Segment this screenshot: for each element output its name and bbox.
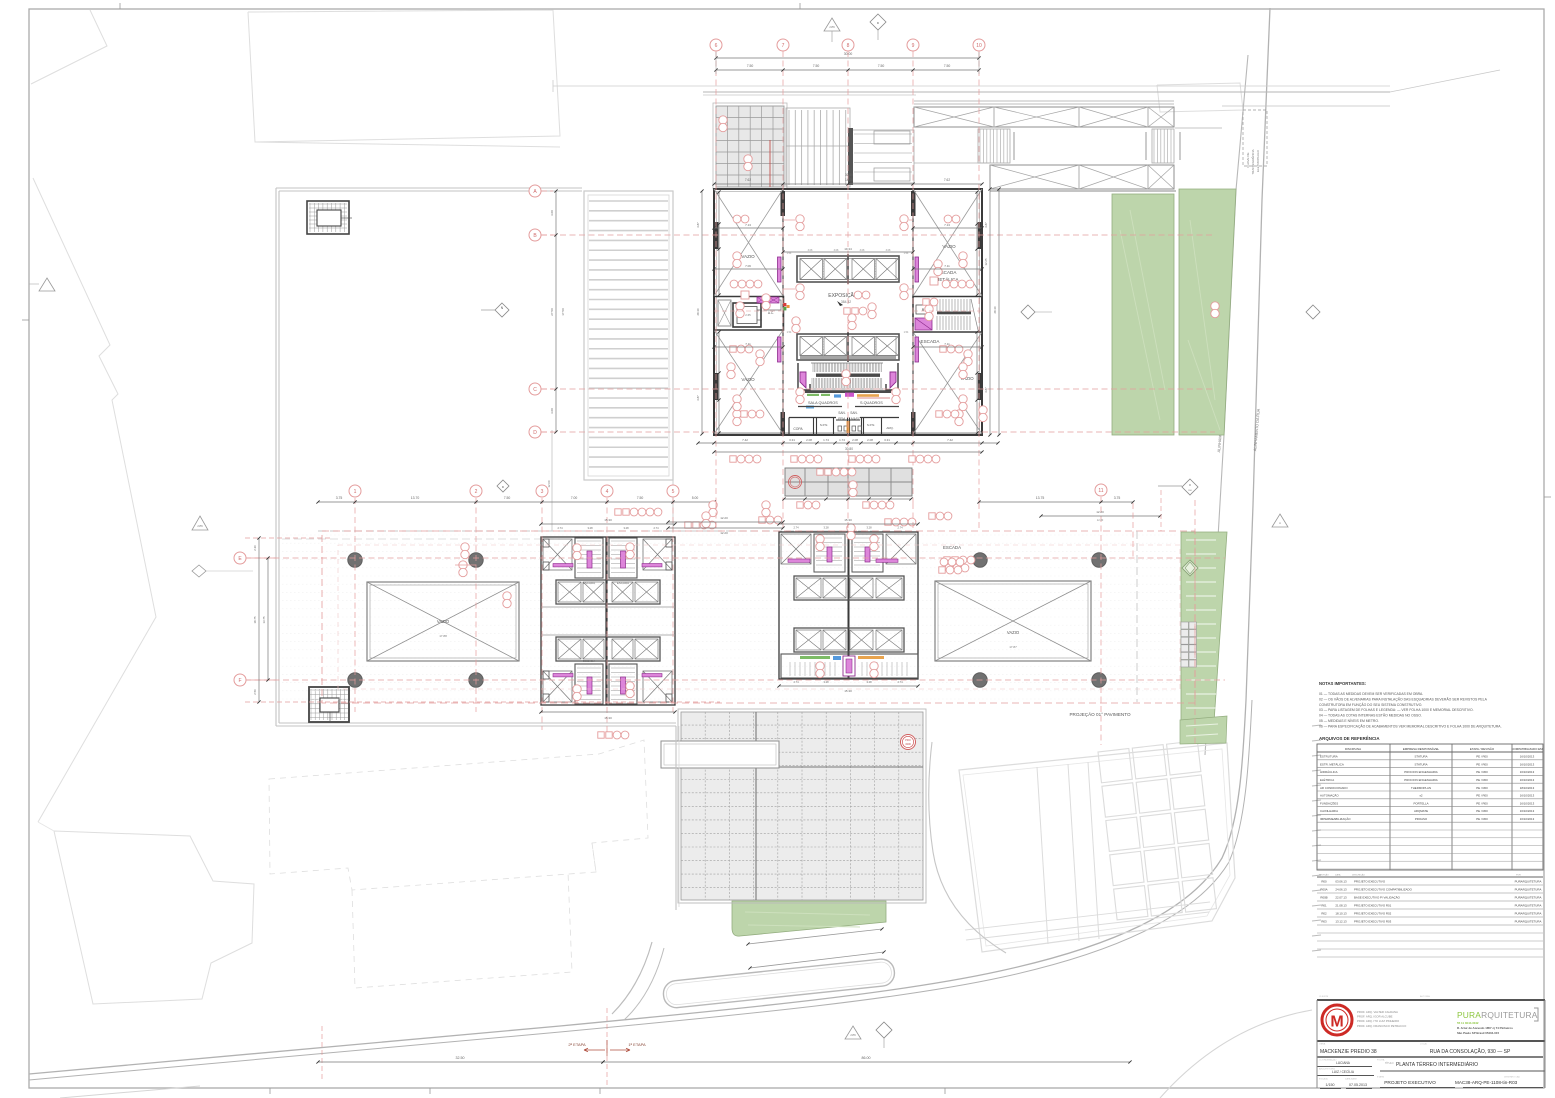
svg-text:ESCALA: ESCALA [1319,1078,1328,1081]
svg-text:PROJETO EXECUTIVO COMPATIBIL: PROJETO EXECUTIVO COMPATIBILIZADO [1354,887,1413,891]
svg-text:2.08: 2.08 [867,438,873,442]
svg-text:3.87: 3.87 [984,387,988,393]
svg-text:CLIENTE: CLIENTE [1319,996,1329,998]
svg-text:F: F [238,678,241,684]
svg-text:3.08: 3.08 [886,249,891,252]
svg-text:16/10/2013: 16/10/2013 [1520,778,1535,782]
svg-text:COMPATIBILIZADO EM: COMPATIBILIZADO EM [1511,747,1543,751]
svg-text:PE / R00: PE / R00 [1476,794,1488,798]
svg-text:30.80: 30.80 [845,173,853,177]
svg-text:REVISÃO: REVISÃO [1319,874,1329,877]
svg-text:3.28: 3.28 [823,680,829,684]
svg-text:A: A [1279,521,1281,525]
svg-text:ELÉTRICA: ELÉTRICA [1320,777,1334,782]
svg-text:7.42: 7.42 [742,438,748,442]
svg-text:PE / R00: PE / R00 [1476,817,1488,821]
svg-text:3.75: 3.75 [1114,496,1121,500]
svg-text:2.50: 2.50 [253,689,257,695]
svg-text:7.50: 7.50 [878,64,885,68]
svg-text:3.28: 3.28 [866,526,872,530]
svg-text:1: 1 [354,489,357,495]
svg-text:2.74: 2.74 [653,526,659,530]
svg-text:32.50: 32.50 [456,1056,465,1060]
svg-text:19.34: 19.34 [844,247,852,251]
svg-text:PROJETO EXECUTIVO: PROJETO EXECUTIVO [1384,1080,1436,1086]
svg-text:7.62: 7.62 [944,178,950,182]
svg-text:55 11 3044.3042: 55 11 3044.3042 [1457,1021,1479,1025]
svg-text:4300: 4300 [905,742,911,746]
svg-text:RUA DA CONSOLAÇÃO, 930 —: RUA DA CONSOLAÇÃO, 930 — SP [1430,1048,1511,1055]
svg-text:COPA: COPA [793,427,803,431]
svg-text:SAN.: SAN. [850,411,858,415]
svg-text:ETAPA / REVISÃO: ETAPA / REVISÃO [1470,746,1495,751]
svg-text:7.13: 7.13 [944,223,950,227]
svg-text:13.75: 13.75 [1036,496,1045,500]
svg-text:12.20: 12.20 [1096,510,1104,514]
svg-text:PROF. ARQ. ITO LUIZ PINHEIRO: PROF. ARQ. ITO LUIZ PINHEIRO [1357,1019,1400,1023]
svg-text:PROCION ENGENHARIA: PROCION ENGENHARIA [1404,770,1437,774]
svg-text:ARQUIVOS DE REFERÊNCIA: ARQUIVOS DE REFERÊNCIA [1319,736,1380,741]
svg-text:2.65: 2.65 [745,313,751,317]
svg-text:TRANSFERÊNCIA: TRANSFERÊNCIA [1250,149,1255,174]
svg-text:FOLHA: FOLHA [1377,1059,1385,1062]
svg-text:384.32: 384.32 [841,300,851,304]
svg-text:s2: s2 [1419,794,1422,798]
svg-text:30.80: 30.80 [845,447,853,451]
svg-text:2155: 2155 [850,1034,856,1037]
svg-text:S.QUADROS: S.QUADROS [860,401,883,405]
svg-text:15.30: 15.30 [844,518,852,522]
svg-text:17.87: 17.87 [1009,645,1017,649]
svg-text:ESTR. METÁLICA: ESTR. METÁLICA [1320,762,1344,766]
svg-text:7.13: 7.13 [745,223,751,227]
svg-text:10: 10 [976,43,982,49]
svg-text:R03: R03 [1321,919,1327,923]
svg-text:7.50: 7.50 [747,64,754,68]
svg-text:D: D [533,430,537,436]
svg-text:1.54: 1.54 [904,331,909,334]
svg-text:7.62: 7.62 [745,178,751,182]
svg-text:15.30: 15.30 [844,689,852,693]
svg-text:ESCADA: ESCADA [583,659,595,663]
svg-text:06 — PARA ESPECIFICAÇÃO DE ACA: 06 — PARA ESPECIFICAÇÃO DE ACABAMENTOS V… [1319,723,1502,728]
svg-text:A.C.: A.C. [768,311,774,315]
svg-text:05 — MEDIDAS E NÍVEIS EM METRO: 05 — MEDIDAS E NÍVEIS EM METRO. [1319,719,1379,723]
svg-text:PURARQUITETURA: PURARQUITETURA [1515,919,1542,923]
svg-text:OBRA: OBRA [1319,1043,1326,1046]
svg-text:PROCION ENGENHARIA: PROCION ENGENHARIA [1404,778,1437,782]
svg-text:DISCIPLINA: DISCIPLINA [1345,747,1361,751]
svg-text:AUTORIA: AUTORIA [1420,995,1430,998]
svg-text:3.08: 3.08 [808,249,813,252]
svg-text:PURARQUITETURA: PURARQUITETURA [1515,903,1542,907]
svg-text:R02: R02 [1321,911,1327,915]
svg-text:1.74: 1.74 [839,438,845,442]
svg-text:7: 7 [782,43,785,49]
svg-text:4: 4 [606,489,609,495]
svg-text:ESCADA: ESCADA [617,581,629,585]
svg-text:AR CONDICIONADO: AR CONDICIONADO [1320,786,1348,790]
svg-text:PROJETO EXECUTIVO R01: PROJETO EXECUTIVO R01 [1354,903,1392,907]
svg-text:M: M [1330,1014,1343,1031]
svg-text:3.28: 3.28 [587,526,593,530]
svg-text:2.74: 2.74 [897,526,903,530]
svg-text:São Paulo SP Brasil 05404-015: São Paulo SP Brasil 05404-015 [1457,1031,1499,1035]
svg-text:12.00: 12.00 [547,480,551,487]
svg-text:PROASO: PROASO [1415,817,1428,821]
svg-text:28.30: 28.30 [993,306,997,313]
svg-text:03 — PARA LISTAGEM DE FOLHAS E: 03 — PARA LISTAGEM DE FOLHAS E LEGENDA: … [1319,708,1474,712]
svg-text:PE / R00: PE / R00 [1476,801,1488,805]
svg-text:ESCADA: ESCADA [921,339,941,344]
svg-text:ETAPA: ETAPA [1377,1076,1384,1079]
svg-text:STATURA: STATURA [1414,762,1427,766]
svg-text:VAZIO: VAZIO [942,244,956,249]
svg-text:AUTOMAÇÃO: AUTOMAÇÃO [1320,793,1339,798]
svg-text:DATA: DATA [1335,874,1341,877]
svg-text:3.87: 3.87 [696,222,700,228]
svg-text:13.75: 13.75 [262,616,266,623]
svg-text:2.74: 2.74 [557,526,563,530]
svg-text:7.50: 7.50 [504,496,511,500]
svg-text:PE / R00: PE / R00 [1476,786,1488,790]
svg-text:TÍTULO: TÍTULO [1385,1062,1394,1065]
svg-text:VAZIO: VAZIO [437,619,450,624]
svg-text:PE / R00: PE / R00 [1476,755,1488,759]
svg-text:7.11: 7.11 [944,264,950,268]
svg-text:LUIZ / CECÍLIA: LUIZ / CECÍLIA [1332,1070,1355,1074]
svg-text:3.87: 3.87 [696,395,700,401]
svg-text:VAZIO: VAZIO [741,254,755,259]
svg-text:7.06: 7.06 [745,264,751,268]
svg-text:16/10/2013: 16/10/2013 [1520,794,1535,798]
svg-text:7.11: 7.11 [944,342,950,346]
svg-text:PURARQUITETURA: PURARQUITETURA [1515,895,1542,899]
svg-text:6: 6 [715,43,718,49]
svg-text:9: 9 [912,43,915,49]
svg-text:DATA BASE: DATA BASE [1345,1078,1357,1081]
svg-text:16/10/2013: 16/10/2013 [1520,817,1535,821]
svg-text:STATURA: STATURA [1414,755,1427,759]
svg-text:7.11: 7.11 [745,342,751,346]
svg-text:ARQ.: ARQ. [886,426,894,430]
svg-text:03.06.13: 03.06.13 [1335,879,1347,883]
svg-text:5: 5 [672,489,675,495]
svg-text:04 — TODAS AS COTAS INTERNAS E: 04 — TODAS AS COTAS INTERNAS ESTÃO MEDID… [1319,713,1422,718]
svg-text:S.P.N.: S.P.N. [820,423,828,427]
svg-text:12.25: 12.25 [984,258,988,265]
svg-text:SAN.: SAN. [838,411,846,415]
svg-text:18.10.13: 18.10.13 [1335,911,1347,915]
svg-text:16/10/2013: 16/10/2013 [1520,755,1535,759]
svg-text:14.70: 14.70 [845,178,853,182]
svg-text:3.08: 3.08 [860,249,865,252]
svg-text:PROJETO EXECUTIVO: PROJETO EXECUTIVO [1354,879,1386,883]
svg-text:3.75: 3.75 [336,496,343,500]
svg-text:BASE EXECUTIVO P/ VALIDAÇÃO: BASE EXECUTIVO P/ VALIDAÇÃO [1354,894,1401,899]
svg-text:FUNDAÇÕES: FUNDAÇÕES [1320,800,1338,805]
svg-text:LUCIANA: LUCIANA [1336,1061,1351,1065]
svg-text:12.20: 12.20 [720,531,728,535]
svg-text:PROF. ARQ. VALTER CALDANA: PROF. ARQ. VALTER CALDANA [1357,1010,1398,1014]
svg-text:15.30: 15.30 [604,518,612,522]
svg-text:PE / R00: PE / R00 [1476,762,1488,766]
svg-text:16/10/2013: 16/10/2013 [1520,809,1535,813]
svg-text:C: C [533,387,537,393]
svg-text:PURARQUITETURA: PURARQUITETURA [1457,1010,1538,1020]
svg-text:D: D [1189,483,1191,487]
svg-text:PROF. ARQ. FRANCISCO PETRACCO: PROF. ARQ. FRANCISCO PETRACCO [1357,1024,1407,1028]
svg-text:COORDENAÇÃO: COORDENAÇÃO [1319,1059,1337,1062]
svg-text:15.30: 15.30 [604,716,612,720]
svg-text:3.28: 3.28 [823,526,829,530]
svg-text:R00A: R00A [1320,887,1327,891]
svg-text:PRO: PRO [905,738,911,742]
svg-text:IMPERMEABILIZAÇÃO: IMPERMEABILIZAÇÃO [1320,816,1351,821]
svg-text:PROJETO EXECUTIVO R03: PROJETO EXECUTIVO R03 [1354,919,1392,923]
svg-text:16/10/2013: 16/10/2013 [1520,770,1535,774]
svg-text:MAC38-ARQ-PE-1108-tin-R03: MAC38-ARQ-PE-1108-tin-R03 [1455,1080,1518,1085]
svg-text:CHAVE DE: CHAVE DE [1246,152,1250,167]
svg-text:MASC.: MASC. [851,417,861,421]
svg-text:2155: 2155 [829,26,835,29]
svg-text:16/10/2013: 16/10/2013 [1520,801,1535,805]
svg-text:21.08.13: 21.08.13 [1335,903,1347,907]
svg-text:18.75: 18.75 [253,616,257,623]
svg-text:PLANTA TÉRREO INTERMEDIÁRIO: PLANTA TÉRREO INTERMEDIÁRIO [1396,1061,1478,1068]
svg-text:1.54: 1.54 [787,252,792,255]
svg-text:FEM.: FEM. [838,417,846,421]
svg-text:2.30: 2.30 [253,545,257,551]
svg-text:VAZIO: VAZIO [1007,630,1020,635]
svg-text:VAZIO: VAZIO [741,377,755,382]
svg-text:24.06.13: 24.06.13 [1335,887,1347,891]
svg-text:2.08: 2.08 [852,438,858,442]
svg-text:ESCADA: ESCADA [943,545,961,550]
svg-text:7.50: 7.50 [813,64,820,68]
svg-text:2.74: 2.74 [793,526,799,530]
svg-text:16/10/2013: 16/10/2013 [1520,762,1535,766]
svg-text:22.07.13: 22.07.13 [1335,895,1347,899]
svg-text:CAIXILHARIA: CAIXILHARIA [1320,809,1338,813]
svg-text:1.54: 1.54 [787,331,792,334]
svg-text:3.28: 3.28 [866,680,872,684]
svg-text:2155: 2155 [197,525,203,528]
svg-text:ESTRUTURA: ESTRUTURA [1320,755,1338,759]
svg-text:7.50: 7.50 [944,64,951,68]
svg-text:8: 8 [847,43,850,49]
svg-text:13.70: 13.70 [411,496,420,500]
svg-text:1ª ETAPA: 1ª ETAPA [628,1042,646,1047]
svg-text:2.08: 2.08 [806,438,812,442]
svg-text:R00B: R00B [1320,895,1327,899]
svg-text:ESCADA: ESCADA [583,581,595,585]
svg-text:3.87: 3.87 [984,222,988,228]
svg-text:3.08: 3.08 [834,249,839,252]
svg-text:2ª ETAPA: 2ª ETAPA [568,1042,586,1047]
svg-text:12.20: 12.20 [720,516,728,520]
svg-text:PURARQUITETURA: PURARQUITETURA [1515,911,1542,915]
svg-text:7.42: 7.42 [947,438,953,442]
svg-text:3.31: 3.31 [884,438,890,442]
svg-text:R01: R01 [1321,903,1327,907]
svg-text:CONSTRUTORA EM FUNÇÃO DO SEU S: CONSTRUTORA EM FUNÇÃO DO SEU SISTEMA CON… [1319,702,1422,707]
svg-text:13.12.13: 13.12.13 [1335,919,1347,923]
svg-text:PROJETO EXECUTIVO R02: PROJETO EXECUTIVO R02 [1354,911,1392,915]
svg-text:PE / R00: PE / R00 [1476,770,1488,774]
svg-text:5.00: 5.00 [692,496,699,500]
svg-text:11: 11 [1098,488,1103,494]
svg-text:R. Artur de Azevedo 1857 cj 74: R. Artur de Azevedo 1857 cj 74 Pinheiros [1457,1026,1513,1030]
svg-text:3.31: 3.31 [789,438,795,442]
svg-text:R00: R00 [1321,879,1327,883]
svg-text:18/10/2013: 18/10/2013 [1520,786,1535,790]
svg-text:PURARQUITETURA: PURARQUITETURA [1515,887,1542,891]
svg-text:SALA QUADROS: SALA QUADROS [808,401,838,405]
svg-text:12.20: 12.20 [1097,518,1104,522]
svg-text:PORTELLA: PORTELLA [1413,801,1428,805]
svg-text:DESCRIÇÃO: DESCRIÇÃO [1352,874,1365,877]
svg-text:7.00: 7.00 [571,496,578,500]
svg-text:2.74: 2.74 [793,680,799,684]
svg-text:PURARQUITETURA: PURARQUITETURA [1515,879,1542,883]
svg-text:HIDRÁULICA: HIDRÁULICA [1320,770,1338,774]
svg-text:ELETROPAULO: ELETROPAULO [1256,149,1260,172]
svg-text:LOCAL: LOCAL [1420,1043,1428,1046]
svg-text:PE / R00: PE / R00 [1476,778,1488,782]
svg-text:28.30: 28.30 [696,308,700,315]
svg-text:3.00: 3.00 [550,408,554,414]
svg-text:DESENHO CAD: DESENHO CAD [1504,1076,1520,1079]
svg-text:EXPOSIÇÃO: EXPOSIÇÃO [828,292,858,299]
svg-text:30.00: 30.00 [844,52,853,56]
svg-text:01 — TODAS AS MEDIDAS DEVEM SE: 01 — TODAS AS MEDIDAS DEVEM SER VERIFICA… [1319,692,1423,696]
svg-text:MACKENZIE PREDIO 38: MACKENZIE PREDIO 38 [1320,1049,1377,1055]
svg-text:1/150: 1/150 [1326,1083,1335,1087]
svg-text:PROF. ARQ. IGOR ALCUBE: PROF. ARQ. IGOR ALCUBE [1357,1015,1393,1019]
svg-text:07.05.2013: 07.05.2013 [1349,1083,1367,1087]
svg-text:THERMOPLAN: THERMOPLAN [1411,786,1431,790]
svg-text:3: 3 [541,489,544,495]
svg-text:3.00: 3.00 [550,210,554,216]
svg-text:PE / R00: PE / R00 [1476,809,1488,813]
svg-text:PROJEÇÃO 01° PAVIMENTO: PROJEÇÃO 01° PAVIMENTO [1069,711,1130,717]
svg-text:27.50: 27.50 [550,308,554,316]
svg-text:NOTAS IMPORTANTES:: NOTAS IMPORTANTES: [1319,681,1366,686]
svg-text:17.50: 17.50 [561,308,565,316]
svg-text:ARQMATE: ARQMATE [1414,809,1428,813]
svg-text:17.88: 17.88 [439,634,447,638]
svg-text:2: 2 [475,489,478,495]
svg-text:1.54: 1.54 [904,252,909,255]
svg-text:3.28: 3.28 [623,526,629,530]
svg-text:1.74: 1.74 [823,438,829,442]
svg-text:EMPRESA RESPONSÁVEL: EMPRESA RESPONSÁVEL [1403,747,1440,751]
svg-text:2.74: 2.74 [897,680,903,684]
svg-text:S.P.N.: S.P.N. [867,423,875,427]
svg-text:7.50: 7.50 [637,496,644,500]
svg-text:02 — OS VÃOS DE ALVENARIAS PAR: 02 — OS VÃOS DE ALVENARIAS PARA INSTALAÇ… [1319,696,1488,701]
svg-text:86.00: 86.00 [862,1056,871,1060]
svg-text:POR: POR [1516,875,1521,877]
